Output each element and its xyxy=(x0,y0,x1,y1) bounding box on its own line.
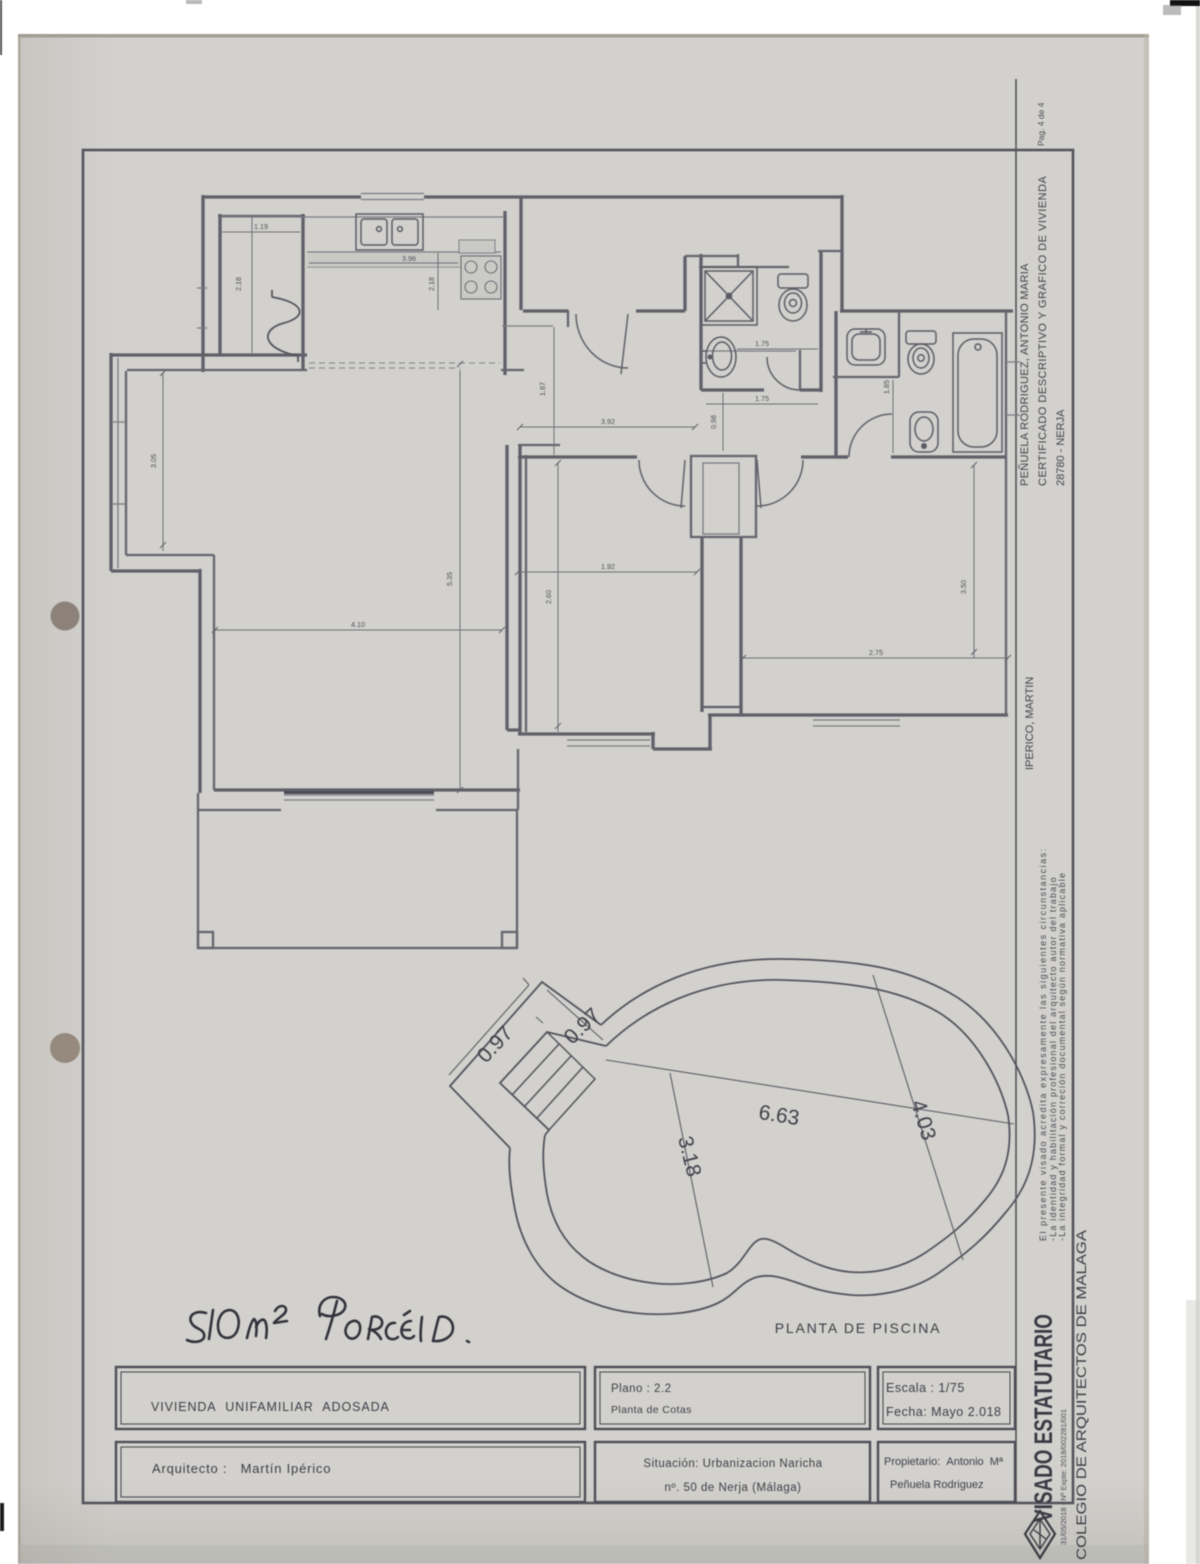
svg-text:2.60: 2.60 xyxy=(544,590,553,604)
svg-text:28780 - NERJA: 28780 - NERJA xyxy=(1055,409,1067,486)
svg-text:2.18: 2.18 xyxy=(234,277,243,291)
svg-text:1.92: 1.92 xyxy=(601,562,615,571)
svg-text:Plano : 2.2: Plano : 2.2 xyxy=(611,1383,671,1395)
svg-text:31/05/2018 - Nº Expte: 2018/00: 31/05/2018 - Nº Expte: 2018/002281/001 xyxy=(1059,1409,1068,1545)
svg-text:1.75: 1.75 xyxy=(755,339,769,348)
svg-text:VISADO ESTATUTARIO: VISADO ESTATUTARIO xyxy=(1030,1314,1058,1522)
svg-text:1.19: 1.19 xyxy=(254,222,268,231)
svg-text:1.87: 1.87 xyxy=(538,382,547,396)
svg-text:3.96: 3.96 xyxy=(402,254,416,263)
svg-text:3.50: 3.50 xyxy=(959,580,968,594)
svg-text:Fecha: Mayo 2.018: Fecha: Mayo 2.018 xyxy=(886,1405,1002,1419)
svg-text:1.85: 1.85 xyxy=(882,380,891,394)
svg-text:3.92: 3.92 xyxy=(601,417,615,426)
svg-text:nº. 50 de Nerja (Málaga): nº. 50 de Nerja (Málaga) xyxy=(664,1482,801,1494)
svg-text:Pag. 4 de 4: Pag. 4 de 4 xyxy=(1036,102,1046,146)
svg-text:Propietario: Antonio Mª: Propietario: Antonio Mª xyxy=(884,1456,1004,1468)
svg-text:Situación: Urbanizacion Narich: Situación: Urbanizacion Naricha xyxy=(643,1458,822,1470)
svg-text:CERTIFICADO DESCRIPTIVO Y GRAF: CERTIFICADO DESCRIPTIVO Y GRAFICO DE VIV… xyxy=(1037,175,1049,486)
svg-text:El presente visado acredita ex: El presente visado acredita expresamente… xyxy=(1038,847,1048,1241)
svg-text:Escala : 1/75: Escala : 1/75 xyxy=(886,1381,965,1395)
svg-text:COLEGIO DE ARQUITECTOS DE MALA: COLEGIO DE ARQUITECTOS DE MALAGA xyxy=(1074,1230,1089,1560)
svg-text:4.10: 4.10 xyxy=(351,620,365,629)
svg-text:PEÑUELA RODRIGUEZ, ANTONIO MAR: PEÑUELA RODRIGUEZ, ANTONIO MARIA xyxy=(1018,263,1031,486)
svg-text:Peñuela Rodriguez: Peñuela Rodriguez xyxy=(890,1479,984,1491)
svg-text:3.05: 3.05 xyxy=(149,454,158,468)
svg-text:Arquitecto : Martín Ipérico: Arquitecto : Martín Ipérico xyxy=(152,1461,331,1476)
svg-text:0.98: 0.98 xyxy=(709,415,718,429)
svg-text:IPERICO, MARTIN: IPERICO, MARTIN xyxy=(1024,677,1036,770)
svg-text:5.35: 5.35 xyxy=(445,572,454,586)
svg-text:Planta de Cotas: Planta de Cotas xyxy=(611,1404,692,1416)
svg-text:VIVIENDA UNIFAMILIAR ADOSADA: VIVIENDA UNIFAMILIAR ADOSADA xyxy=(151,1400,390,1414)
svg-text:2.18: 2.18 xyxy=(427,277,436,291)
svg-text:PLANTA DE PISCINA: PLANTA DE PISCINA xyxy=(775,1320,942,1336)
svg-text:-La integridad formal y correc: -La integridad formal y correción docume… xyxy=(1057,872,1067,1241)
svg-text:1.75: 1.75 xyxy=(755,394,769,403)
svg-text:2.75: 2.75 xyxy=(869,648,883,657)
